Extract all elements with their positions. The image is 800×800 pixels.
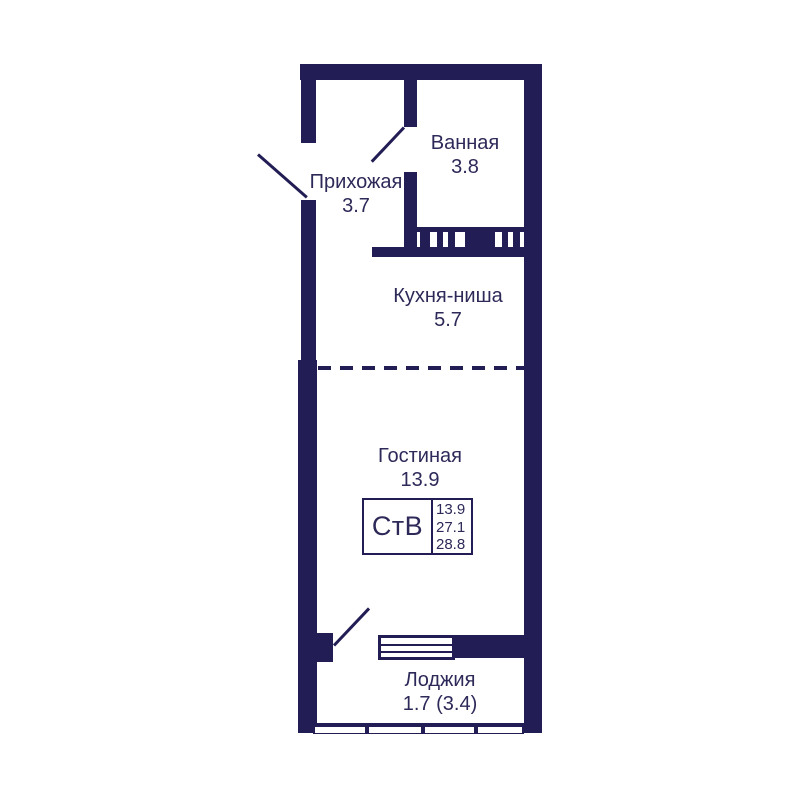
loggia-window-block — [378, 635, 455, 660]
apartment-areas: 13.9 27.1 28.8 — [431, 500, 471, 553]
wall-left-upper — [301, 64, 316, 143]
room-label-loggia: Лоджия 1.7 (3.4) — [360, 668, 520, 716]
apartment-type-label: СтВ — [364, 500, 431, 553]
area-value: 28.8 — [436, 536, 471, 554]
wall-left-lower — [298, 360, 317, 733]
window-sill-line — [381, 651, 452, 653]
kitchen-living-dashed-boundary — [318, 366, 524, 370]
glazing-pane — [425, 727, 474, 733]
room-name: Ванная — [385, 131, 545, 155]
wall-loggia-jamb — [313, 633, 333, 662]
room-name: Гостиная — [340, 444, 500, 468]
floor-plan: Ванная 3.8 Прихожая 3.7 Кухня-ниша 5.7 Г… — [0, 0, 800, 800]
area-value: 27.1 — [436, 519, 471, 537]
room-area: 3.7 — [276, 194, 436, 218]
room-label-kitchen: Кухня-ниша 5.7 — [368, 284, 528, 332]
room-name: Лоджия — [360, 668, 520, 692]
vent-bar — [448, 232, 455, 247]
room-area: 1.7 (3.4) — [360, 692, 520, 716]
window-sill-line — [381, 644, 452, 646]
glazing-pane — [478, 727, 522, 733]
room-label-hallway: Прихожая 3.7 — [276, 170, 436, 218]
glazing-pane — [315, 727, 365, 733]
vent-bar — [437, 232, 443, 247]
room-name: Прихожая — [276, 170, 436, 194]
room-name: Кухня-ниша — [368, 284, 528, 308]
room-label-living: Гостиная 13.9 — [340, 444, 500, 492]
wall-left-middle — [301, 200, 316, 360]
wall-top — [300, 64, 542, 80]
room-area: 13.9 — [340, 468, 500, 492]
glazing-pane — [369, 727, 421, 733]
loggia-glazing — [313, 726, 524, 734]
area-value: 13.9 — [436, 501, 471, 519]
loggia-door-swing — [333, 607, 370, 646]
vent-bar — [502, 232, 508, 247]
vent-bar — [420, 232, 430, 247]
vent-shaft — [417, 232, 524, 247]
vent-bar — [465, 232, 495, 247]
vent-bar — [513, 232, 520, 247]
wall-bathroom-upper — [404, 80, 417, 127]
apartment-info-box: СтВ 13.9 27.1 28.8 — [362, 498, 473, 555]
room-area: 5.7 — [368, 308, 528, 332]
wall-living-bottom — [455, 635, 524, 658]
wall-kitchen-top — [372, 247, 542, 257]
